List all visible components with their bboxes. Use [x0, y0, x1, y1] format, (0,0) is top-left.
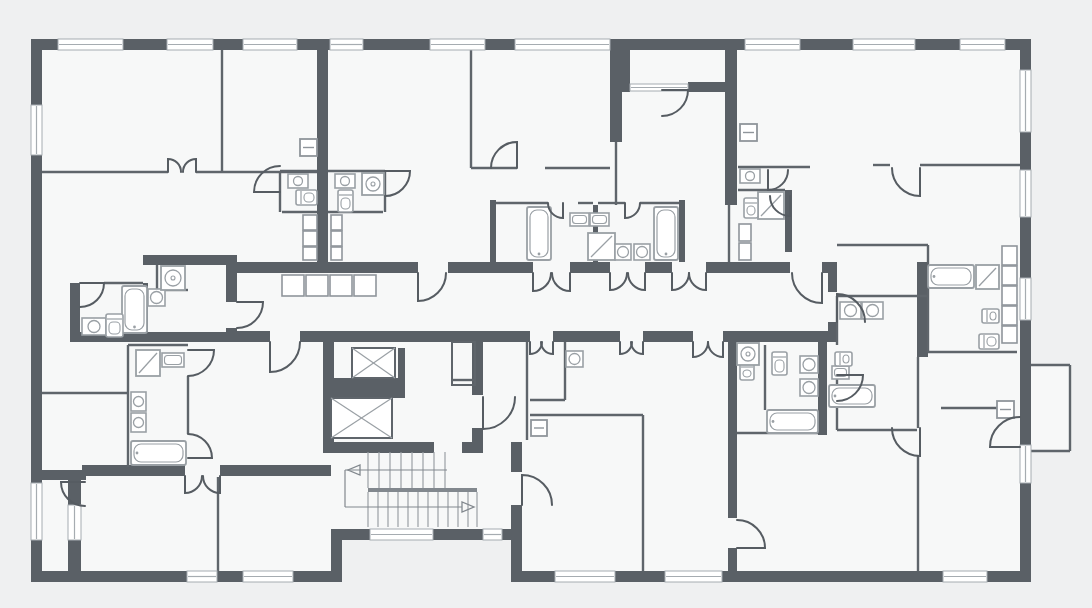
- wall-segment: [323, 331, 483, 342]
- duct-vent: [1002, 266, 1017, 285]
- duct-vent: [303, 247, 317, 260]
- duct-vent: [1002, 306, 1017, 325]
- wall-segment: [226, 262, 237, 302]
- wall-segment: [679, 200, 685, 262]
- wall-segment: [472, 342, 483, 395]
- wall-segment: [570, 262, 610, 273]
- duct-vent: [1002, 286, 1017, 305]
- wall-segment: [917, 262, 928, 357]
- floor-plan: [0, 0, 1092, 608]
- wall-segment: [490, 200, 496, 262]
- wall-segment: [68, 540, 81, 571]
- wall-segment: [237, 262, 418, 273]
- wall-segment: [622, 50, 630, 92]
- wall-segment: [237, 331, 270, 342]
- duct-vent: [303, 215, 317, 230]
- wall-segment: [828, 262, 837, 292]
- wall-segment: [317, 50, 328, 262]
- wall-segment: [553, 331, 620, 342]
- wall-segment: [472, 428, 483, 442]
- duct-vent: [739, 224, 751, 241]
- wall-segment: [728, 548, 737, 571]
- wall-segment: [143, 255, 237, 265]
- duct-vent: [303, 231, 317, 246]
- wall-segment: [398, 348, 405, 378]
- wall-segment: [643, 331, 693, 342]
- duct-vent: [1002, 326, 1017, 343]
- duct-vent: [331, 215, 342, 230]
- bathtub-drain: [772, 420, 775, 423]
- wall-segment: [645, 262, 672, 273]
- washing-machine: [737, 343, 759, 365]
- wall-segment: [688, 82, 727, 92]
- wall-segment: [610, 50, 622, 142]
- wall-segment: [818, 342, 827, 435]
- wall-segment: [511, 505, 522, 529]
- duct-vent: [306, 275, 328, 296]
- bathtub-drain: [834, 395, 837, 398]
- bathtub-drain: [133, 326, 136, 329]
- wall-segment: [448, 262, 533, 273]
- duct-vent: [354, 275, 376, 296]
- bathtub-drain: [665, 253, 668, 256]
- bathtub-drain: [933, 275, 936, 278]
- wall-segment: [323, 442, 434, 453]
- wall-segment: [331, 529, 342, 582]
- duct-vent: [739, 243, 751, 260]
- wall-segment: [725, 50, 737, 205]
- duct-vent: [331, 231, 342, 246]
- wall-segment: [511, 442, 522, 472]
- wall-segment: [220, 465, 331, 476]
- wall-segment: [728, 342, 737, 518]
- duct-vent: [1002, 246, 1017, 265]
- duct-vent: [330, 275, 352, 296]
- bathtub-drain: [136, 452, 139, 455]
- stair-landing-edge: [368, 488, 477, 492]
- wall-segment: [334, 378, 405, 398]
- wall-segment: [70, 283, 80, 332]
- floor-plan-canvas: [0, 0, 1092, 608]
- room-area: [1031, 365, 1070, 451]
- exterior-notch: [342, 540, 511, 582]
- wall-segment: [477, 331, 530, 342]
- wall-segment: [462, 442, 483, 453]
- wall-segment: [82, 465, 185, 476]
- wall-segment: [723, 331, 830, 342]
- bathtub-drain: [538, 253, 541, 256]
- wall-segment: [706, 262, 790, 273]
- duct-vent: [331, 247, 342, 260]
- washing-machine: [362, 173, 384, 195]
- duct-vent: [282, 275, 304, 296]
- wall-segment: [300, 331, 323, 342]
